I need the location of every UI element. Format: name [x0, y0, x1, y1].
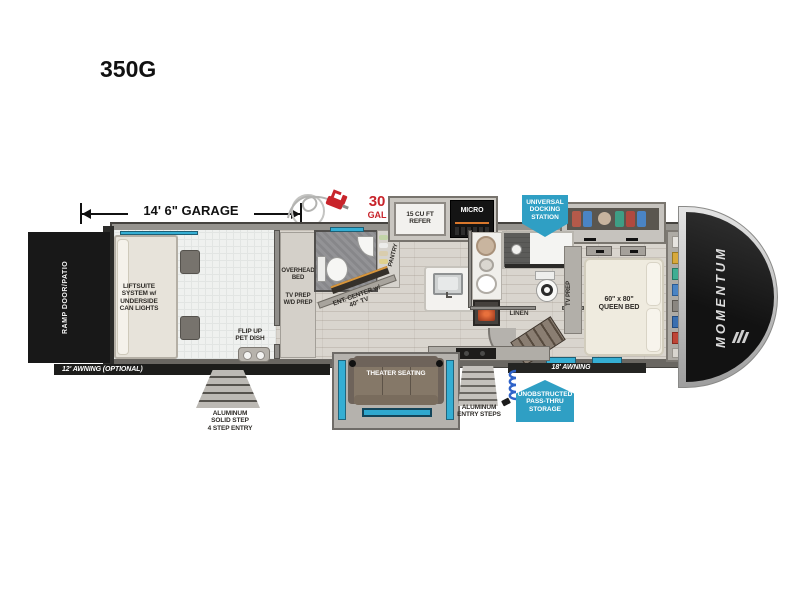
toilet-seat — [541, 284, 553, 296]
slide-handle — [584, 238, 596, 241]
half-bath-window — [330, 227, 364, 232]
ramp-door-label: RAMP DOOR/PATIO — [62, 240, 70, 355]
bedroom-bench — [620, 246, 646, 256]
fuel-nozzle-icon — [325, 190, 352, 213]
clothes-item — [583, 211, 592, 227]
liftsuite-label: LIFTSUITE SYSTEM w/ UNDERSIDE CAN LIGHTS — [104, 283, 174, 312]
vanity-dish — [479, 258, 494, 272]
pantry-shelf — [379, 235, 388, 240]
tv-wd-prep-label: TV PREP W/D PREP — [280, 293, 316, 306]
bench-handle — [630, 250, 638, 253]
awning-18-rail: 18' AWNING — [508, 363, 646, 373]
main-entry-steps — [458, 366, 498, 406]
pet-dish-bowl — [256, 351, 265, 360]
bed-pillow — [646, 262, 661, 306]
momentum-m-logo — [734, 330, 750, 344]
passthru-storage-badge: UNOBSTRUCTED PASS-THRU STORAGE — [516, 380, 574, 422]
island-faucet — [446, 292, 452, 298]
shower-head — [511, 244, 522, 255]
bed-pillow — [646, 308, 661, 352]
pantry-shelf — [379, 259, 388, 264]
overhead-bed-label: OVERHEAD BED — [280, 268, 316, 281]
bedroom-wardrobe-slide — [560, 202, 666, 244]
garage-dimension-label: 14' 6" GARAGE — [128, 204, 254, 219]
theater-label: THEATER SEATING — [356, 370, 436, 377]
garage-ottoman-bottom — [180, 316, 200, 340]
clothes-item — [572, 211, 581, 227]
awning-12-rail: 12' AWNING (OPTIONAL) — [54, 364, 330, 375]
cooktop — [456, 348, 496, 359]
fuel-hose — [288, 196, 332, 218]
fireplace — [473, 300, 500, 326]
garage-ottoman-top — [180, 250, 200, 274]
clothes-item — [626, 211, 635, 227]
pet-dish-tray — [238, 347, 270, 362]
cupholder — [436, 360, 443, 367]
dim-arrowhead-left — [82, 209, 91, 219]
theater-rug — [362, 408, 432, 417]
refrigerator-label: 15 CU FT REFER — [396, 211, 444, 226]
sofa-front — [354, 395, 438, 405]
clothes-item — [615, 211, 624, 227]
slide-window — [338, 360, 346, 420]
pet-dish-label: FLIP UP PET DISH — [226, 328, 274, 343]
vanity-decor-bowl — [476, 236, 496, 256]
toilet — [536, 279, 558, 302]
microwave-label: MICRO — [451, 207, 493, 215]
burner — [480, 351, 485, 356]
bedroom-bench — [586, 246, 612, 256]
half-bath-toilet-tank — [317, 256, 326, 282]
bench-handle — [596, 250, 604, 253]
garage-entry-steps — [196, 370, 260, 408]
refrigerator: 15 CU FT REFER — [394, 202, 446, 236]
cord-plug — [501, 397, 511, 406]
shower-door — [505, 264, 573, 268]
ramp-door: RAMP DOOR/PATIO — [28, 232, 110, 363]
floorplan-canvas: 350G 14' 6" GARAGE 30 GAL RAMP DOOR/PATI… — [0, 0, 800, 600]
clothes-item — [598, 212, 611, 225]
island-sink-basin — [438, 277, 458, 290]
awning-12-label: 12' AWNING (OPTIONAL) — [62, 366, 212, 374]
tv-prep-label: TV PREP — [566, 272, 573, 316]
cupholder — [349, 360, 356, 367]
pantry-shelf — [379, 251, 388, 256]
awning-18-label: 18' AWNING — [536, 364, 606, 372]
pet-dish-bowl — [243, 351, 252, 360]
pantry-shelf — [379, 243, 388, 248]
linen-label: LINEN — [502, 310, 536, 317]
queen-bed-label: 60" x 80" QUEEN BED — [590, 296, 648, 312]
slide-handle — [626, 238, 638, 241]
front-cap: MOMENTUM — [686, 212, 774, 382]
theater-slide: THEATER SEATING — [332, 352, 460, 430]
vanity-sink — [476, 274, 497, 294]
garage-steps-label: ALUMINUM SOLID STEP 4 STEP ENTRY — [178, 410, 282, 432]
model-title: 350G — [100, 56, 156, 83]
half-bath-toilet — [326, 257, 348, 282]
clothes-item — [637, 211, 646, 227]
brand-logo: MOMENTUM — [714, 234, 729, 360]
burner — [464, 351, 469, 356]
microwave-accent — [455, 222, 489, 224]
